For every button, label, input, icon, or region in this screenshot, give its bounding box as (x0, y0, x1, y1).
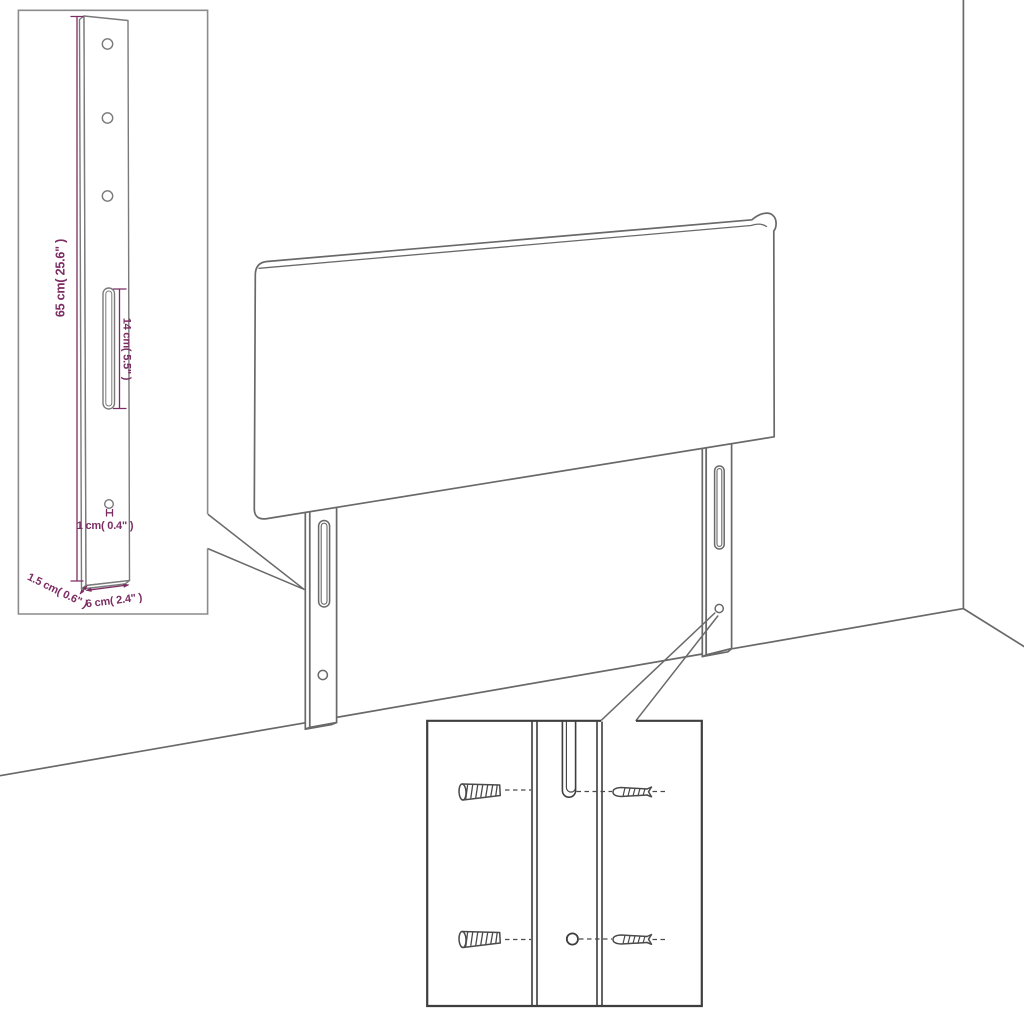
leg-front-face (310, 500, 337, 727)
inset-leg-detail: 65 cm( 25.6" ) 14 cm( 5.5" ) 1 cm( 0.4" … (18, 10, 207, 614)
leg-detail-drawing (80, 16, 130, 589)
inset-mounting-detail (427, 721, 702, 1006)
inset-background (427, 721, 702, 1006)
callout-wedge-right (601, 613, 718, 721)
dimension-label-hole: 1 cm( 0.4" ) (77, 520, 134, 532)
leg-front-face (706, 440, 731, 655)
panel-outline (254, 213, 776, 519)
dimension-label-height: 65 cm( 25.6" ) (53, 239, 67, 317)
assembly-diagram: 65 cm( 25.6" ) 14 cm( 5.5" ) 1 cm( 0.4" … (0, 0, 1024, 1024)
floor-line-right (963, 609, 1024, 647)
headboard-left-leg (305, 500, 336, 729)
callout-wedge-left (208, 514, 304, 589)
dimension-label-slot-length: 14 cm( 5.5" ) (121, 318, 133, 381)
headboard-right-leg (702, 440, 731, 657)
headboard-panel (254, 213, 776, 519)
